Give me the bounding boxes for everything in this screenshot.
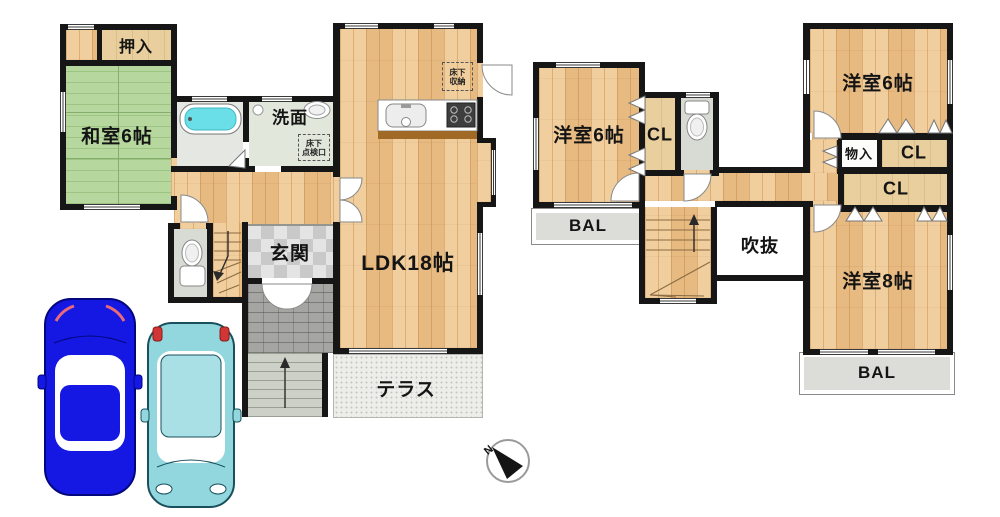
car-blue (38, 299, 142, 495)
door-gap (683, 170, 710, 176)
wall-segment (639, 207, 645, 304)
label-washitsu: 和室6帖 (81, 122, 153, 149)
wall-segment (312, 278, 340, 284)
window (60, 92, 66, 132)
label-closet-2: CL (901, 143, 927, 164)
wall-segment (242, 222, 248, 417)
underfloor-storage-box: 床下 収納 (442, 62, 473, 91)
wall-segment (477, 23, 483, 63)
wall-segment (168, 297, 248, 303)
front-door-gap (262, 278, 312, 284)
window (192, 96, 227, 102)
underfloor-storage-line1: 床下 (450, 68, 466, 77)
door-gap (333, 177, 340, 222)
underfloor-hatch-line1: 床下 (306, 139, 322, 148)
label-ldk: LDK18帖 (361, 247, 455, 277)
wall-segment (947, 140, 953, 212)
window (554, 202, 632, 208)
wall-segment (171, 24, 177, 158)
compass-north-label: N (482, 443, 496, 457)
wall-segment (711, 207, 717, 304)
window (262, 96, 292, 102)
wall-segment (803, 23, 953, 29)
entrance-porch (248, 284, 333, 353)
label-oshiire: 押入 (119, 33, 153, 57)
label-closet-1: CL (647, 125, 673, 146)
underfloor-hatch-line2: 点検口 (302, 148, 326, 157)
door-gap (180, 223, 206, 229)
wall-segment (837, 140, 842, 168)
stairs-2f-floor (645, 207, 711, 298)
room-toilet-2f (681, 98, 713, 170)
sliding-door (84, 204, 140, 210)
window (533, 118, 539, 170)
window (947, 60, 953, 104)
wall-segment (171, 196, 177, 210)
label-bedroom8: 洋室8帖 (842, 267, 914, 294)
underfloor-storage-line2: 収納 (450, 77, 466, 86)
wall-segment (477, 97, 483, 138)
window (820, 349, 868, 355)
label-bedroom6-right: 洋室6帖 (842, 69, 914, 96)
floor-plan: N 床下 収納 床下 (0, 0, 1000, 517)
wall-segment (877, 140, 882, 168)
window (434, 23, 454, 29)
label-closet-3: CL (883, 179, 909, 200)
wall-segment (838, 133, 953, 140)
room-corner-board (66, 30, 97, 60)
bay-floor (477, 143, 491, 202)
wall-segment (837, 167, 953, 174)
label-terrace: テラス (376, 375, 436, 402)
window (349, 348, 447, 354)
wall-segment (639, 170, 684, 176)
room-bathroom (177, 102, 243, 166)
tatami-line (66, 158, 171, 159)
label-monoire: 物入 (845, 144, 873, 163)
corridor-2f-arm (810, 140, 837, 173)
door-arc (482, 65, 512, 95)
room-toilet-1f (174, 229, 207, 297)
window (803, 60, 810, 94)
car-teal (141, 323, 241, 507)
wall-segment (333, 23, 340, 177)
wall-segment (639, 62, 645, 208)
window (68, 24, 94, 30)
compass-needle (492, 447, 523, 479)
wall-segment (60, 60, 177, 66)
tatami-line (66, 112, 171, 113)
wall-segment (171, 166, 255, 172)
wall-segment (713, 92, 719, 176)
wall-segment (675, 98, 681, 170)
wall-segment (248, 278, 262, 284)
label-balcony-right: BAL (858, 363, 896, 383)
corridor-2f (645, 173, 839, 201)
window (660, 298, 696, 304)
wall-segment (333, 222, 340, 354)
wall-segment (281, 166, 334, 172)
label-balcony-left: BAL (569, 216, 607, 236)
door-gap (812, 133, 838, 140)
window (345, 23, 378, 29)
wall-segment (711, 275, 810, 281)
wall-segment (838, 205, 953, 212)
wall-segment (803, 23, 810, 173)
wall-segment (715, 201, 807, 207)
wall-segment (243, 96, 249, 142)
wall-segment (715, 167, 807, 173)
label-senmen: 洗面 (272, 104, 308, 129)
window (878, 349, 935, 355)
window (947, 235, 953, 290)
wall-segment (322, 353, 328, 417)
window (686, 92, 710, 98)
window (477, 233, 483, 295)
window (556, 62, 600, 68)
compass: N (482, 440, 529, 482)
door-gap (477, 63, 483, 97)
underfloor-hatch-box: 床下 点検口 (298, 134, 330, 161)
stairs-1f-floor (213, 223, 242, 297)
label-void: 吹抜 (741, 232, 779, 258)
wall-segment (207, 229, 213, 303)
label-genkan: 玄関 (270, 239, 310, 266)
label-bedroom6-left: 洋室6帖 (553, 121, 625, 148)
room-hall (174, 172, 333, 225)
window (491, 150, 496, 195)
entrance-steps (248, 353, 322, 417)
wall-segment (168, 223, 174, 303)
